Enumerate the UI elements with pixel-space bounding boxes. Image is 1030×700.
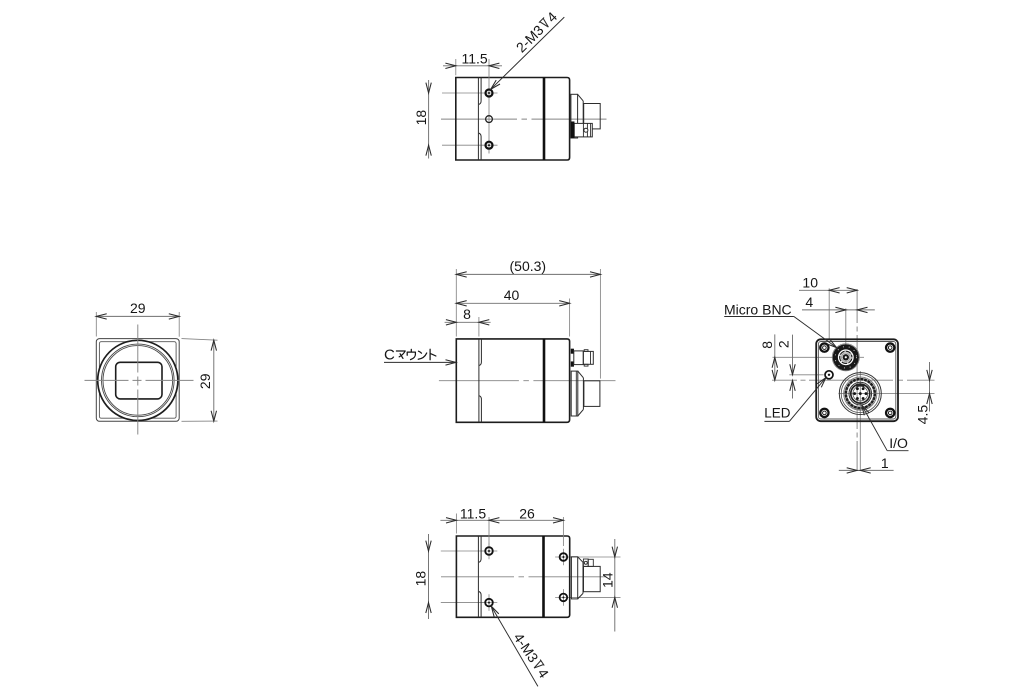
svg-text:18: 18: [412, 571, 428, 587]
svg-text:11.5: 11.5: [460, 506, 486, 522]
svg-text:4.5: 4.5: [914, 405, 930, 425]
svg-text:10: 10: [802, 274, 818, 290]
svg-text:40: 40: [504, 287, 520, 303]
svg-text:8: 8: [759, 341, 775, 349]
svg-text:29: 29: [130, 300, 146, 316]
svg-text:8: 8: [463, 306, 471, 322]
svg-text:2: 2: [775, 340, 791, 348]
svg-text:26: 26: [519, 506, 535, 522]
svg-text:29: 29: [197, 373, 213, 389]
svg-text:(50.3): (50.3): [510, 258, 547, 274]
svg-text:14: 14: [599, 572, 615, 588]
svg-text:1: 1: [881, 455, 889, 471]
svg-text:I/O: I/O: [889, 435, 908, 451]
svg-text:18: 18: [413, 110, 429, 126]
svg-text:11.5: 11.5: [461, 51, 487, 67]
svg-text:LED: LED: [764, 405, 791, 420]
svg-text:Micro BNC: Micro BNC: [724, 302, 792, 318]
svg-text:4: 4: [805, 294, 813, 310]
svg-text:C: C: [384, 346, 395, 363]
